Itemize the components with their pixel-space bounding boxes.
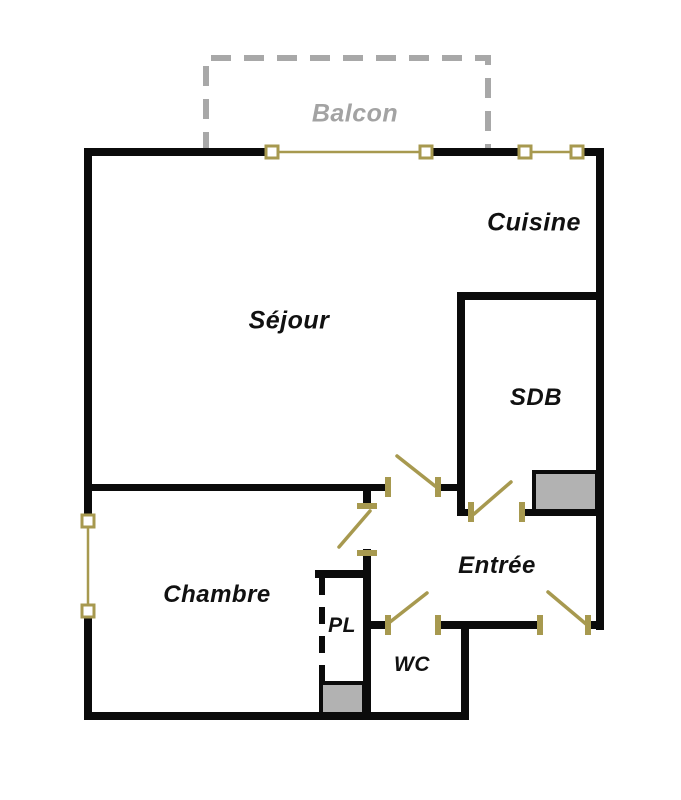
door-jamb [385,615,391,635]
wall-sejour-chambre [84,484,391,491]
window-square [82,605,94,617]
door-jamb [385,477,391,497]
wall-sdb-north [457,292,604,300]
wall-west [84,148,92,720]
room-label-chambre: Chambre [163,581,271,609]
door-jamb [435,615,441,635]
wall-wc-east-step [461,621,469,720]
window-square [519,146,531,158]
room-label-entree: Entrée [458,552,536,580]
window-square [571,146,583,158]
room-label-pl: PL [328,614,356,638]
door-leaf-wc [390,593,427,622]
room-label-sejour: Séjour [249,307,330,336]
wall-east [596,148,604,630]
door-leaf-sdb [474,482,511,514]
door-jamb [357,550,377,556]
door-leaf-entrance [548,592,586,624]
window-square [82,515,94,527]
fixture-pl [321,683,364,714]
door-jamb [519,502,525,522]
fixture-sdb [534,472,597,511]
door-jamb [468,502,474,522]
wall-wc-north-west [363,621,387,629]
window-square [266,146,278,158]
wall-pl-north [315,570,371,578]
door-leaf-chambre [339,511,370,547]
floorplan-canvas: Balcon Cuisine Séjour SDB Chambre Entrée… [0,0,681,800]
window-square [420,146,432,158]
wall-sdb-west [457,292,465,516]
wall-wc-north-east [440,621,462,629]
door-leaf-sejour [397,456,435,486]
door-jamb [357,503,377,509]
room-label-balcon: Balcon [312,100,398,129]
room-label-wc: WC [394,653,430,677]
door-jamb [537,615,543,635]
room-label-sdb: SDB [510,384,562,412]
wall-south-entree [461,621,541,629]
room-label-cuisine: Cuisine [487,209,581,238]
wall-south-west [84,712,469,720]
